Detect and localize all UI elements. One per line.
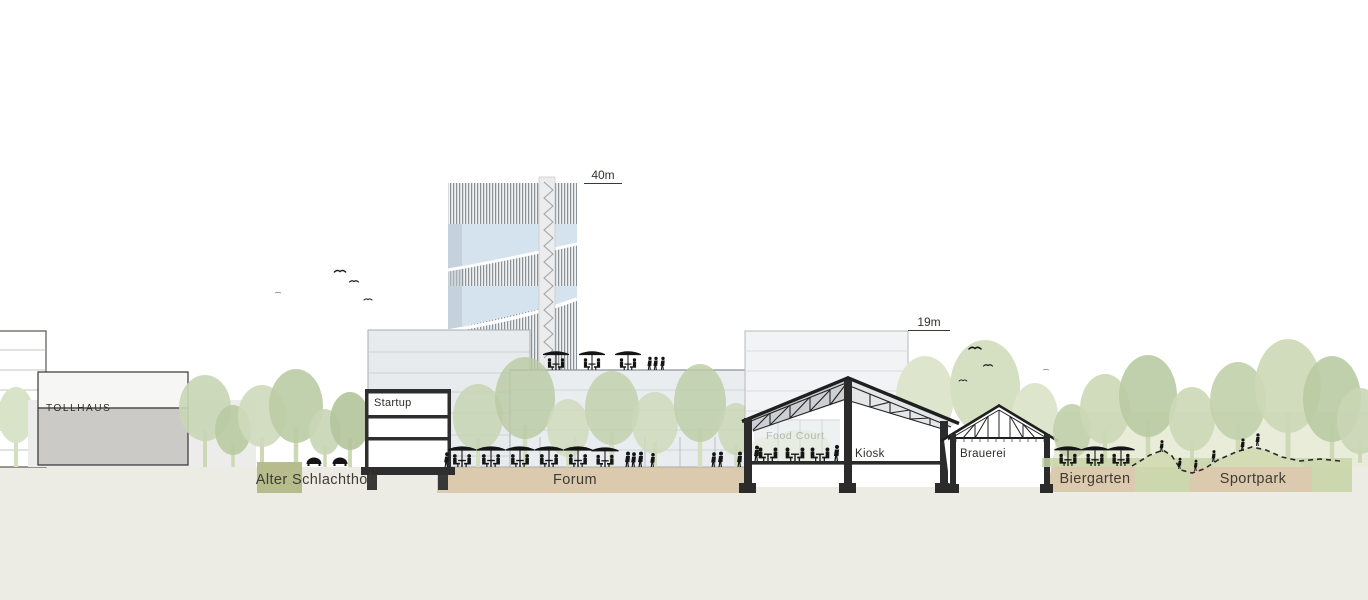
benches: [307, 458, 348, 467]
label-kiosk: Kiosk: [855, 448, 885, 461]
label-food-court: Food Court: [766, 431, 825, 443]
architectural-section-canvas: 40m 19m TOLLHAUS Startup Food Court Kios…: [0, 0, 1368, 600]
measurement-hall-height: 19m: [908, 316, 950, 331]
label-brauerei: Brauerei: [960, 448, 1006, 461]
ground-strips: [0, 466, 1368, 600]
zone-label-biergarten: Biergarten: [1056, 472, 1134, 488]
section-drawing: [0, 0, 1368, 600]
rooftop-terrace-people: [543, 351, 665, 370]
zone-label-alter-schlachthof: Alter Schlachthof: [229, 473, 399, 489]
measurement-tower-height: 40m: [584, 169, 622, 184]
zone-label-forum: Forum: [500, 473, 650, 489]
label-tollhaus: TOLLHAUS: [46, 403, 111, 414]
zone-label-sportpark: Sportpark: [1208, 472, 1298, 488]
label-startup: Startup: [374, 397, 412, 409]
